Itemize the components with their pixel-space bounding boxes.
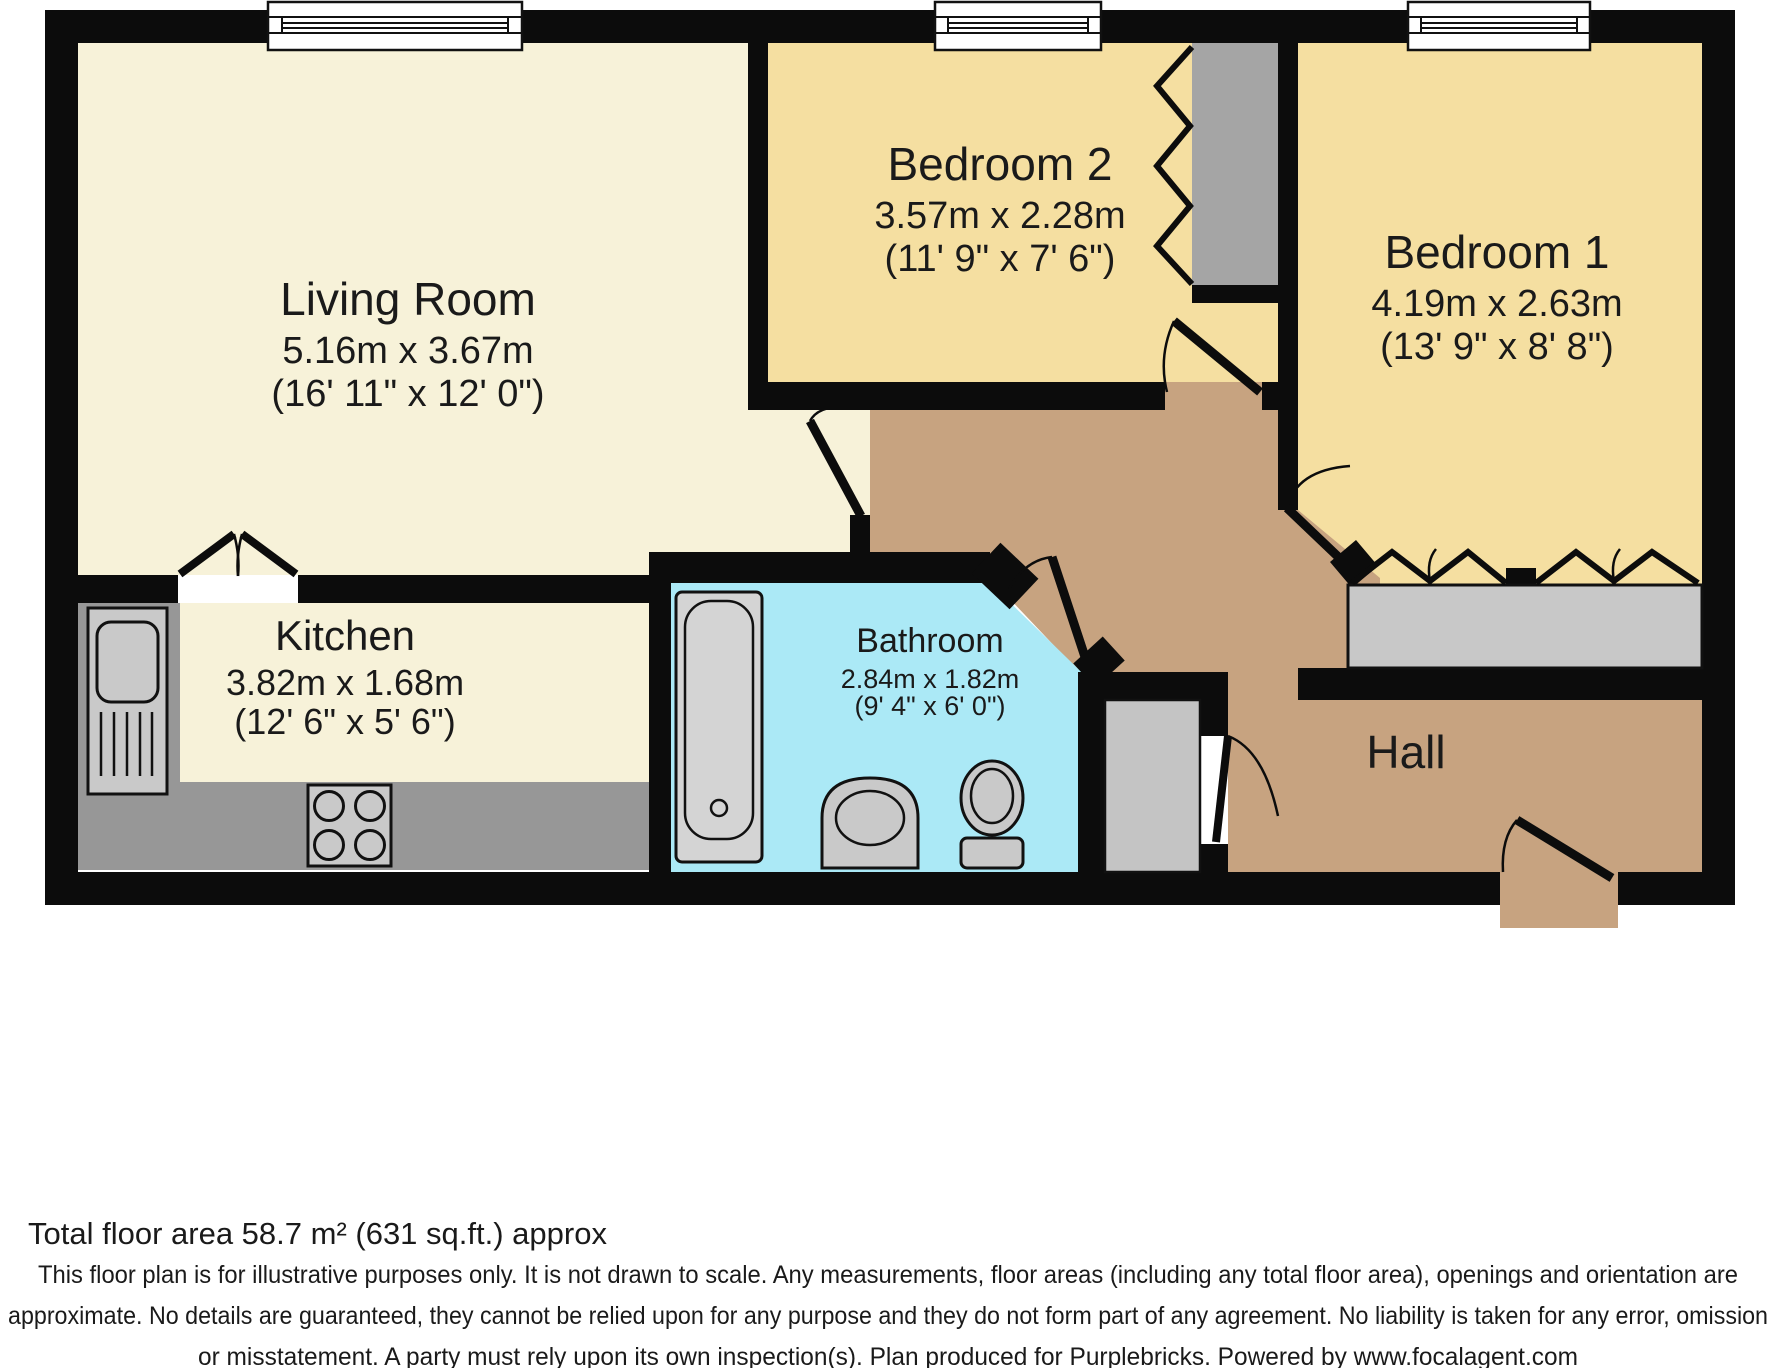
bedroom1-imperial: (13' 9" x 8' 8") bbox=[1380, 326, 1614, 368]
bathroom-imperial: (9' 4" x 6' 0") bbox=[854, 691, 1005, 721]
living-room-label: Living Room bbox=[280, 273, 536, 325]
wall-living-bedroom2 bbox=[748, 43, 768, 410]
wall-right bbox=[1702, 10, 1735, 905]
wall-bottom-left bbox=[45, 872, 1500, 905]
total-floor-area-text: Total floor area 58.7 m² (631 sq.ft.) ap… bbox=[28, 1216, 607, 1251]
bedroom2-label: Bedroom 2 bbox=[887, 138, 1112, 190]
wall-bedroom1-left bbox=[1278, 43, 1298, 510]
wall-cupboard-left bbox=[1078, 672, 1105, 872]
disclaimer-line-2: approximate. No details are guaranteed, … bbox=[8, 1302, 1768, 1330]
living-room-metric: 5.16m x 3.67m bbox=[282, 330, 533, 372]
wall-kitchen-top-right bbox=[298, 575, 671, 603]
wall-bedroom2-bottom-left bbox=[748, 382, 1165, 410]
disclaimer-line-1: This floor plan is for illustrative purp… bbox=[38, 1261, 1738, 1289]
kitchen-hob-icon bbox=[308, 785, 391, 866]
toilet-icon bbox=[961, 761, 1023, 868]
wall-bottom-right bbox=[1618, 872, 1735, 905]
floor-plan-drawing: Living Room 5.16m x 3.67m (16' 11" x 12'… bbox=[0, 0, 1776, 1368]
bedroom1-label: Bedroom 1 bbox=[1384, 226, 1609, 278]
wall-bathroom-diagonal-lower bbox=[1088, 650, 1110, 674]
basin-icon bbox=[822, 778, 918, 868]
wall-kitchen-top-left bbox=[45, 575, 178, 603]
bathtub-icon bbox=[676, 592, 762, 862]
wall-cupboard-right-upper bbox=[1200, 700, 1228, 736]
disclaimer-line-3: or misstatement. A party must rely upon … bbox=[198, 1343, 1578, 1368]
hall-cupboard bbox=[1105, 700, 1200, 872]
footer: Total floor area 58.7 m² (631 sq.ft.) ap… bbox=[8, 1216, 1768, 1368]
kitchen-sink-icon bbox=[88, 608, 167, 794]
wall-cupboard-right-lower bbox=[1200, 844, 1228, 872]
bedroom1-window-icon bbox=[1408, 2, 1590, 50]
wall-bedroom2-wardrobe-bottom bbox=[1192, 285, 1278, 303]
wall-kitchen-bathroom bbox=[649, 575, 671, 872]
wall-left bbox=[45, 10, 78, 905]
bathroom-metric: 2.84m x 1.82m bbox=[841, 664, 1020, 694]
wall-cupboard-top bbox=[1078, 672, 1228, 700]
living-room-window-icon bbox=[268, 2, 522, 50]
kitchen-metric: 3.82m x 1.68m bbox=[226, 662, 464, 703]
bedroom2-metric: 3.57m x 2.28m bbox=[874, 195, 1125, 237]
kitchen-imperial: (12' 6" x 5' 6") bbox=[234, 701, 455, 742]
bedroom1-wardrobe bbox=[1348, 585, 1702, 668]
bedroom2-imperial: (11' 9" x 7' 6") bbox=[885, 238, 1116, 280]
kitchen-label: Kitchen bbox=[275, 612, 415, 659]
bedroom2-window-icon bbox=[935, 2, 1101, 50]
hall-label: Hall bbox=[1366, 726, 1445, 778]
wall-bedroom1-wardrobe-bottom bbox=[1298, 668, 1702, 700]
floor-plan-page: Living Room 5.16m x 3.67m (16' 11" x 12'… bbox=[0, 0, 1776, 1368]
bedroom1-metric: 4.19m x 2.63m bbox=[1371, 283, 1622, 325]
wall-bathroom-top bbox=[649, 552, 990, 583]
bathroom-label: Bathroom bbox=[856, 622, 1003, 660]
bedroom2-wardrobe bbox=[1192, 43, 1278, 285]
living-room-imperial: (16' 11" x 12' 0") bbox=[271, 373, 544, 415]
